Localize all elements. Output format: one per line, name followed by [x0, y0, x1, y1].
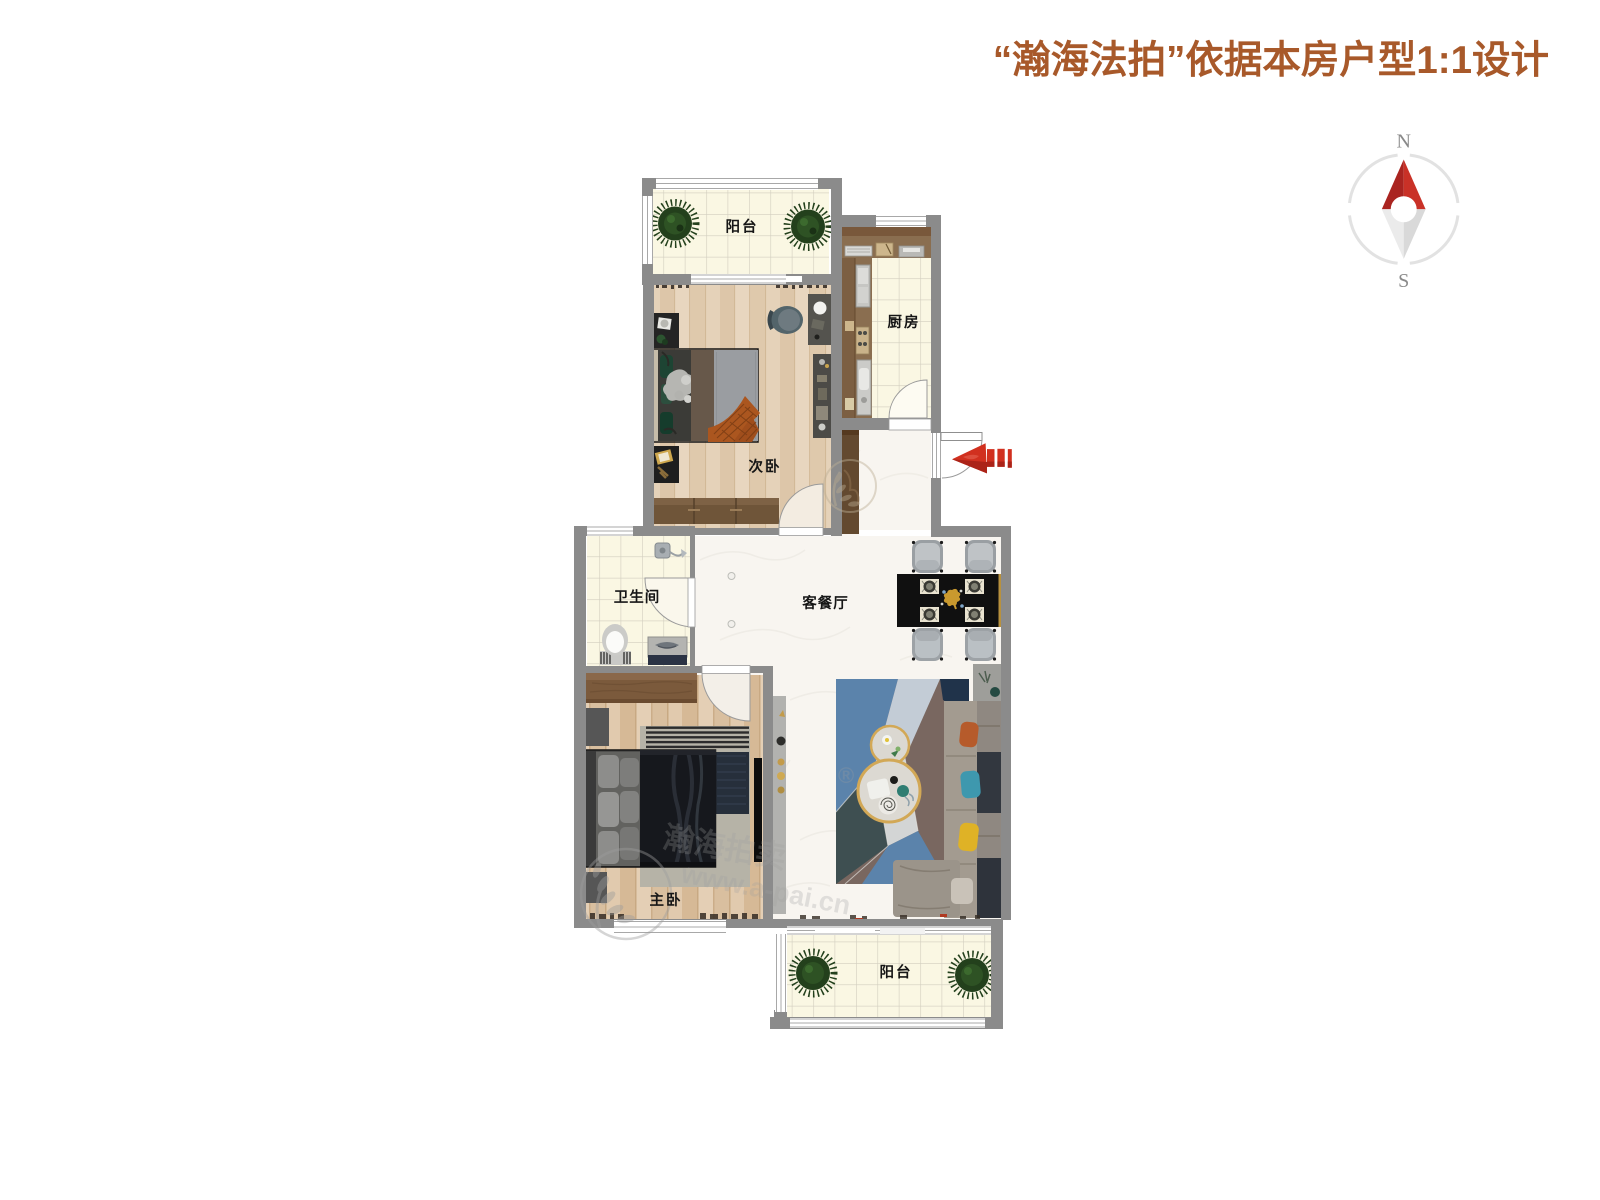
- svg-text:厨房: 厨房: [888, 313, 921, 331]
- svg-text:阳台: 阳台: [726, 218, 759, 236]
- svg-text:阳台: 阳台: [880, 963, 913, 981]
- svg-text:客餐厅: 客餐厅: [801, 594, 849, 612]
- svg-text:S: S: [1398, 270, 1409, 292]
- svg-text:N: N: [1396, 131, 1410, 153]
- svg-text:主卧: 主卧: [650, 891, 683, 909]
- svg-text:®: ®: [838, 763, 854, 788]
- svg-text:次卧: 次卧: [749, 458, 782, 476]
- svg-text:卫生间: 卫生间: [614, 588, 661, 606]
- svg-text:“瀚海法拍”依据本房户型1:1设计: “瀚海法拍”依据本房户型1:1设计: [993, 39, 1549, 82]
